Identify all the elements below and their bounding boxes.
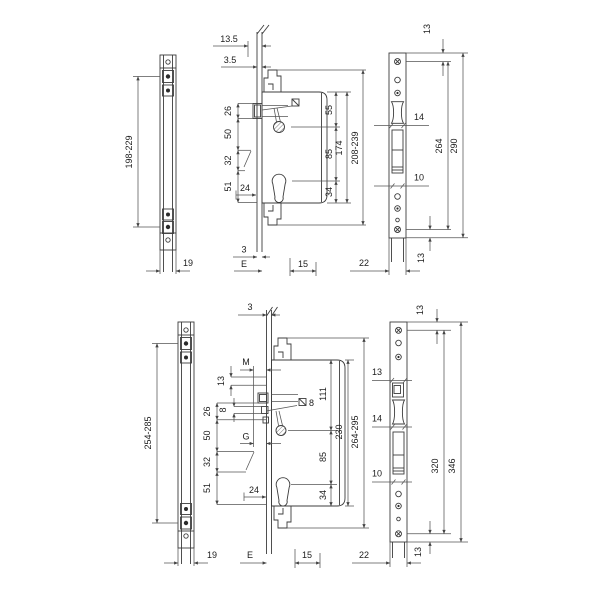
dim-label-roller-cut-top: 14 bbox=[414, 112, 424, 122]
dim-label-backset-bottom: E bbox=[247, 550, 253, 560]
fixing-dot-icon bbox=[166, 89, 170, 93]
dim-label-spindle-square: 8 bbox=[309, 398, 314, 408]
dim-label-top-to-spindle-bottom: 111 bbox=[318, 387, 328, 401]
dim-label-face-thickness-top: 3 bbox=[241, 245, 246, 255]
dim-label-hook-offset: 13.5 bbox=[220, 34, 238, 44]
dim-label-depth-bottom: 15 bbox=[302, 550, 312, 560]
dim-label-face-offset: 3.5 bbox=[224, 55, 237, 65]
dim-label-case-height-bottom: 230 bbox=[334, 424, 344, 439]
dim-label-upper-cut-bottom: 13 bbox=[372, 367, 382, 377]
dim-label-top-to-spindle: 55 bbox=[324, 105, 334, 115]
drawing-background bbox=[0, 0, 601, 600]
dim-label-strike-screw-span-bottom: 320 bbox=[430, 458, 440, 473]
dim-label-overall-height-bottom: 264-295 bbox=[350, 415, 360, 448]
dim-label-latch-height-bottom: 26 bbox=[202, 406, 212, 416]
dim-label-latch-height-top: 26 bbox=[223, 106, 233, 116]
dim-label-strike-top-edge-top: 13 bbox=[422, 24, 432, 34]
dim-label-cyl-backset-bottom: 24 bbox=[249, 485, 259, 495]
dim-label-strip-width-top: 19 bbox=[183, 258, 193, 268]
fixing-dot-icon bbox=[184, 341, 188, 345]
dim-label-overall-height-top: 208-239 bbox=[350, 131, 360, 164]
dim-label-spindle-to-cyl-bottom: 85 bbox=[318, 452, 328, 462]
dim-label-g: G bbox=[242, 432, 249, 442]
dim-label-cyl-to-bottom-bottom: 34 bbox=[318, 490, 328, 500]
dim-label-strike-width-top: 22 bbox=[359, 258, 369, 268]
dim-label-cyl-backset-top: 24 bbox=[240, 183, 250, 193]
dim-label-bolt-cut-bottom: 10 bbox=[372, 469, 382, 479]
dim-label-strike-height-bottom: 346 bbox=[447, 458, 457, 473]
fixing-dot-icon bbox=[166, 213, 170, 217]
dim-label-strike-screw-span-top: 264 bbox=[434, 138, 444, 153]
dim-label-case-height-top: 174 bbox=[334, 140, 344, 155]
dim-label-m: M bbox=[242, 357, 250, 367]
dim-label-strip-span-top: 198-229 bbox=[124, 135, 134, 168]
fixing-dot-icon bbox=[184, 521, 188, 525]
dim-label-face-thickness-bottom: 3 bbox=[247, 302, 252, 312]
dim-label-aux-height: 13 bbox=[216, 376, 226, 386]
dim-label-latch-to-spindle-bottom: 50 bbox=[202, 430, 212, 440]
dim-label-cyl-to-bottom-top: 34 bbox=[324, 187, 334, 197]
spindle-follower-hole bbox=[276, 426, 286, 436]
dim-label-strike-bottom-edge-top: 13 bbox=[416, 253, 426, 263]
dim-label-strike-bottom-edge-bottom: 13 bbox=[413, 547, 423, 557]
dim-label-mid-gap-bottom: 32 bbox=[202, 457, 212, 467]
technical-drawing-page: 198-229 19 13.5 bbox=[0, 0, 601, 600]
dim-label-strike-height-top: 290 bbox=[449, 138, 459, 153]
dim-label-spindle-to-cyl-top: 85 bbox=[324, 149, 334, 159]
dim-label-latch-to-spindle-top: 50 bbox=[223, 129, 233, 139]
fixing-dot-icon bbox=[166, 74, 170, 78]
spindle-follower-hole bbox=[274, 122, 285, 133]
dim-label-strip-span-bottom: 254-285 bbox=[143, 416, 153, 449]
fixing-dot-icon bbox=[184, 356, 188, 360]
dim-label-depth-top: 15 bbox=[298, 259, 308, 269]
dim-label-latch-lip: 8 bbox=[218, 407, 228, 412]
fixing-dot-icon bbox=[184, 507, 188, 511]
dim-label-lower-gap-bottom: 51 bbox=[202, 483, 212, 493]
fixing-dot-icon bbox=[166, 225, 170, 229]
dim-label-backset-top: E bbox=[241, 259, 247, 269]
dim-label-roller-cut-bottom: 14 bbox=[372, 414, 382, 424]
dim-label-strip-width-bottom: 19 bbox=[207, 550, 217, 560]
dim-label-mid-gap-top: 32 bbox=[223, 155, 233, 165]
dim-label-strike-width-bottom: 22 bbox=[359, 550, 369, 560]
dim-label-lower-gap-top: 51 bbox=[223, 181, 233, 191]
dim-label-bolt-cut-top: 10 bbox=[414, 173, 424, 183]
dim-label-strike-top-edge-bottom: 13 bbox=[415, 305, 425, 315]
technical-drawing-canvas: 198-229 19 13.5 bbox=[0, 0, 601, 600]
